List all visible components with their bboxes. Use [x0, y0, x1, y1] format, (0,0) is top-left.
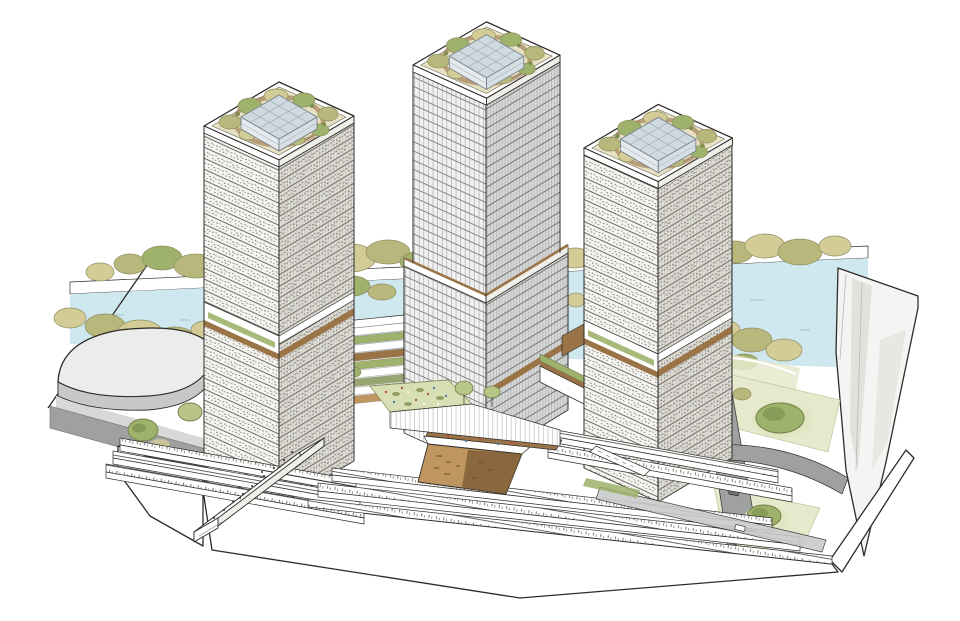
plaza-tree [455, 381, 473, 395]
architectural-rendering [0, 0, 960, 621]
rendering-canvas [0, 0, 960, 621]
tower-left [204, 82, 354, 505]
street-tree [178, 403, 202, 421]
plaza-tree [484, 386, 500, 398]
